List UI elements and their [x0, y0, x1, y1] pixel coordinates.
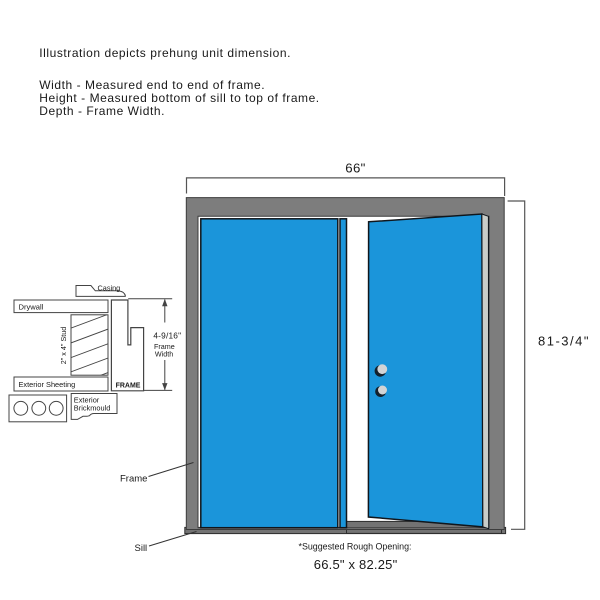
svg-text:Exterior Sheeting: Exterior Sheeting: [19, 380, 76, 389]
svg-text:2" x 4" Stud: 2" x 4" Stud: [59, 327, 68, 364]
svg-text:Depth - Frame Width.: Depth - Frame Width.: [39, 104, 165, 118]
svg-text:81-3/4": 81-3/4": [538, 334, 590, 349]
svg-text:Illustration depicts prehung u: Illustration depicts prehung unit dimens…: [39, 46, 291, 60]
svg-text:Casing: Casing: [98, 283, 121, 292]
svg-text:Frame: Frame: [120, 473, 147, 484]
svg-text:Brickmould: Brickmould: [74, 403, 111, 412]
svg-text:4-9/16": 4-9/16": [153, 331, 181, 341]
svg-text:*Suggested Rough Opening:: *Suggested Rough Opening:: [299, 542, 412, 552]
svg-text:Drywall: Drywall: [19, 302, 44, 311]
svg-text:66": 66": [345, 161, 366, 176]
svg-text:Width: Width: [155, 350, 173, 359]
svg-text:Width - Measured end to end of: Width - Measured end to end of frame.: [39, 78, 265, 92]
svg-text:Sill: Sill: [135, 543, 148, 554]
svg-text:FRAME: FRAME: [116, 382, 141, 389]
svg-text:66.5" x 82.25": 66.5" x 82.25": [314, 557, 398, 572]
svg-text:Height - Measured bottom of si: Height - Measured bottom of sill to top …: [39, 91, 319, 105]
